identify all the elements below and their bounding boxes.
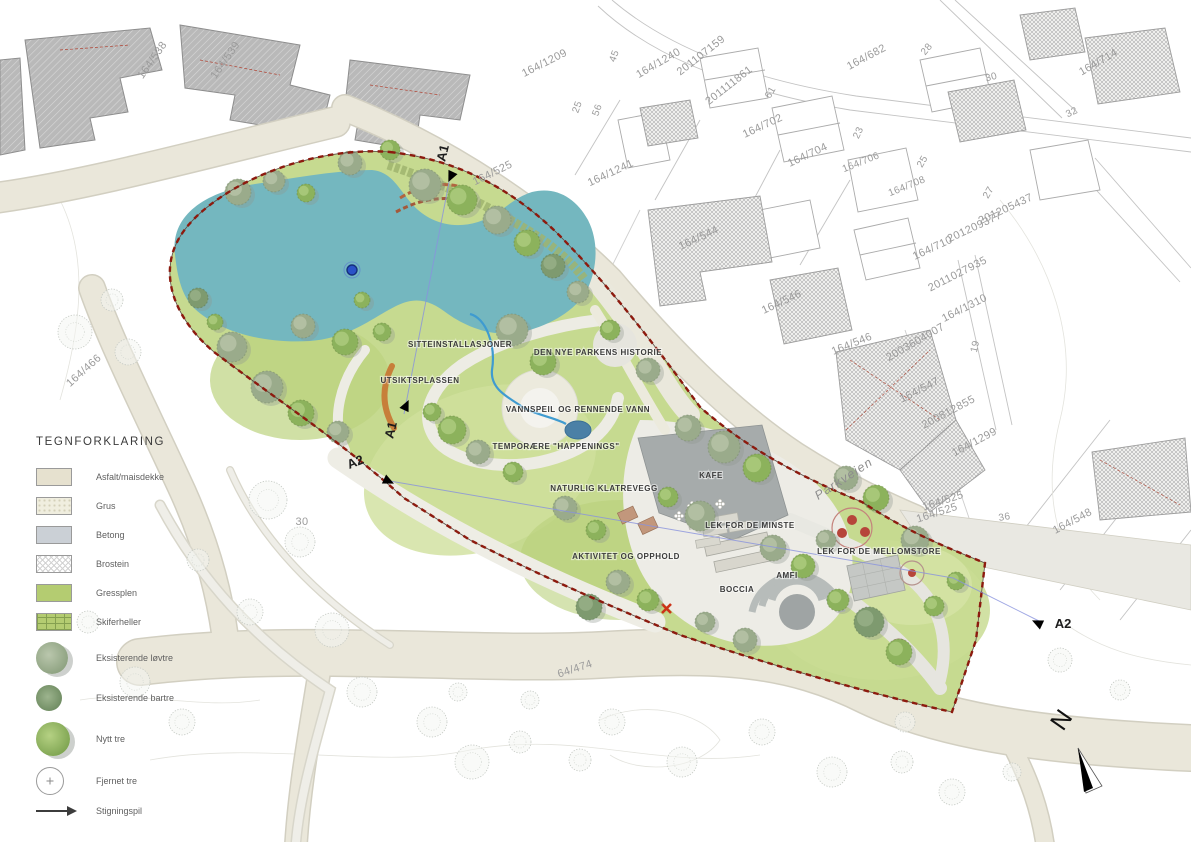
faint-tree <box>455 745 489 779</box>
parcel-label: 25 <box>570 100 584 115</box>
faint-tree <box>749 719 775 745</box>
area-label: DEN NYE PARKENS HISTORIE <box>534 348 662 357</box>
area-label: UTSIKTSPLASSEN <box>380 376 459 385</box>
parcel-label: 201209377 <box>946 209 1004 245</box>
parcel-label: 164/710 <box>911 234 955 263</box>
legend-item-label: Eksisterende løvtre <box>96 653 173 663</box>
faint-tree <box>891 751 913 773</box>
faint-tree <box>667 747 697 777</box>
area-label: SITTEINSTALLASJONER <box>408 340 512 349</box>
legend-item-label: Stigningspil <box>96 806 142 816</box>
legend-panel: TEGNFORKLARING Asfalt/maisdekke Grus Bet… <box>36 436 226 827</box>
legend-item: Eksisterende løvtre <box>36 642 226 674</box>
faint-tree <box>1048 648 1072 672</box>
parcel-label: 32 <box>1064 105 1079 120</box>
area-label: AKTIVITET OG OPPHOLD <box>572 552 680 561</box>
legend-item-label: Grus <box>96 501 116 511</box>
legend-item: Asfalt/maisdekke <box>36 468 226 486</box>
parcel-label: 164/1209 <box>520 47 569 80</box>
parcel-label: 30 <box>984 71 998 85</box>
legend-item: Eksisterende bartre <box>36 685 226 711</box>
faint-tree <box>285 527 315 557</box>
section-marker: A2 <box>1030 616 1071 631</box>
legend-swatch-conifer-tree-icon <box>36 685 62 711</box>
parcel-label: 19 <box>969 339 982 353</box>
parcel-label: 23 <box>851 125 866 140</box>
legend-item: Betong <box>36 526 226 544</box>
legend-item-label: Asfalt/maisdekke <box>96 472 164 482</box>
legend-item-label: Nytt tre <box>96 734 125 744</box>
area-label: BOCCIA <box>720 585 755 594</box>
parcel-label: 56 <box>590 103 604 118</box>
legend-item-label: Brostein <box>96 559 129 569</box>
legend-item: Nytt tre <box>36 722 226 756</box>
legend-swatch-deciduous-tree-icon <box>36 642 68 674</box>
faint-tree <box>509 731 531 753</box>
faint-tree <box>347 677 377 707</box>
legend-swatch-removed-tree-icon <box>36 767 64 795</box>
faint-tree <box>449 683 467 701</box>
faint-tree <box>417 707 447 737</box>
water-pool <box>565 421 591 439</box>
area-label: AMFI <box>776 571 798 580</box>
faint-tree <box>249 481 287 519</box>
faint-tree <box>58 315 92 349</box>
faint-tree <box>569 749 591 771</box>
parcel-label: 164/1240 <box>634 46 683 81</box>
parcel-label: 25 <box>915 154 931 170</box>
area-label: KAFE <box>699 471 723 480</box>
legend-item: Brostein <box>36 555 226 573</box>
legend-item: Gressplen <box>36 584 226 602</box>
site-plan-canvas: A1A1A2A2 164/538164/539164/1209164/12411… <box>0 0 1191 842</box>
legend-swatch-cobblestone-icon <box>36 555 72 573</box>
area-label: VANNSPEIL OG RENNENDE VANN <box>506 405 650 414</box>
legend-title: TEGNFORKLARING <box>36 436 226 448</box>
legend-item: Skiferheller <box>36 613 226 631</box>
parcel-label: 164/1310 <box>940 292 989 325</box>
section-marker-label: A2 <box>1055 616 1072 631</box>
area-label: NATURLIG KLATREVEGG <box>550 484 657 493</box>
legend-item-label: Skiferheller <box>96 617 141 627</box>
legend-swatch-new-tree-icon <box>36 722 70 756</box>
faint-tree <box>1003 763 1021 781</box>
legend-swatch-asphalt-icon <box>36 468 72 486</box>
faint-tree <box>115 339 141 365</box>
legend-item-label: Eksisterende bartre <box>96 693 174 703</box>
faint-tree <box>521 691 539 709</box>
legend-item-label: Betong <box>96 530 125 540</box>
faint-tree <box>101 289 123 311</box>
legend-swatch-grass-icon <box>36 584 72 602</box>
faint-tree <box>817 757 847 787</box>
parcel-label: 27 <box>981 185 997 201</box>
faint-tree <box>895 712 915 732</box>
faint-tree <box>939 779 965 805</box>
legend-swatch-gravel-icon <box>36 497 72 515</box>
legend-swatch-slate-icon <box>36 613 72 631</box>
legend-item-label: Gressplen <box>96 588 137 598</box>
faint-tree <box>599 709 625 735</box>
parcel-label: 28 <box>919 41 935 57</box>
area-label: TEMPORÆRE "HAPPENINGS" <box>492 442 619 451</box>
parcel-label: 164/466 <box>64 352 104 389</box>
parcel-label: 164/1241 <box>586 157 636 189</box>
legend-swatch-slope-arrow-icon <box>36 810 70 812</box>
legend-item: Grus <box>36 497 226 515</box>
area-label: LEK FOR DE MELLOMSTORE <box>817 547 941 556</box>
faint-tree <box>1110 680 1130 700</box>
fountain <box>344 262 360 278</box>
area-label: LEK FOR DE MINSTE <box>705 521 795 530</box>
faint-tree <box>237 599 263 625</box>
legend-swatch-concrete-icon <box>36 526 72 544</box>
parcel-label: 164/682 <box>845 42 888 73</box>
parcel-label: 45 <box>607 49 621 64</box>
parcel-label: 36 <box>998 511 1012 524</box>
legend-item: Stigningspil <box>36 806 226 816</box>
parcel-label: 30 <box>295 516 308 528</box>
faint-tree <box>315 613 349 647</box>
legend-item: Fjernet tre <box>36 767 226 795</box>
legend-item-label: Fjernet tre <box>96 776 137 786</box>
